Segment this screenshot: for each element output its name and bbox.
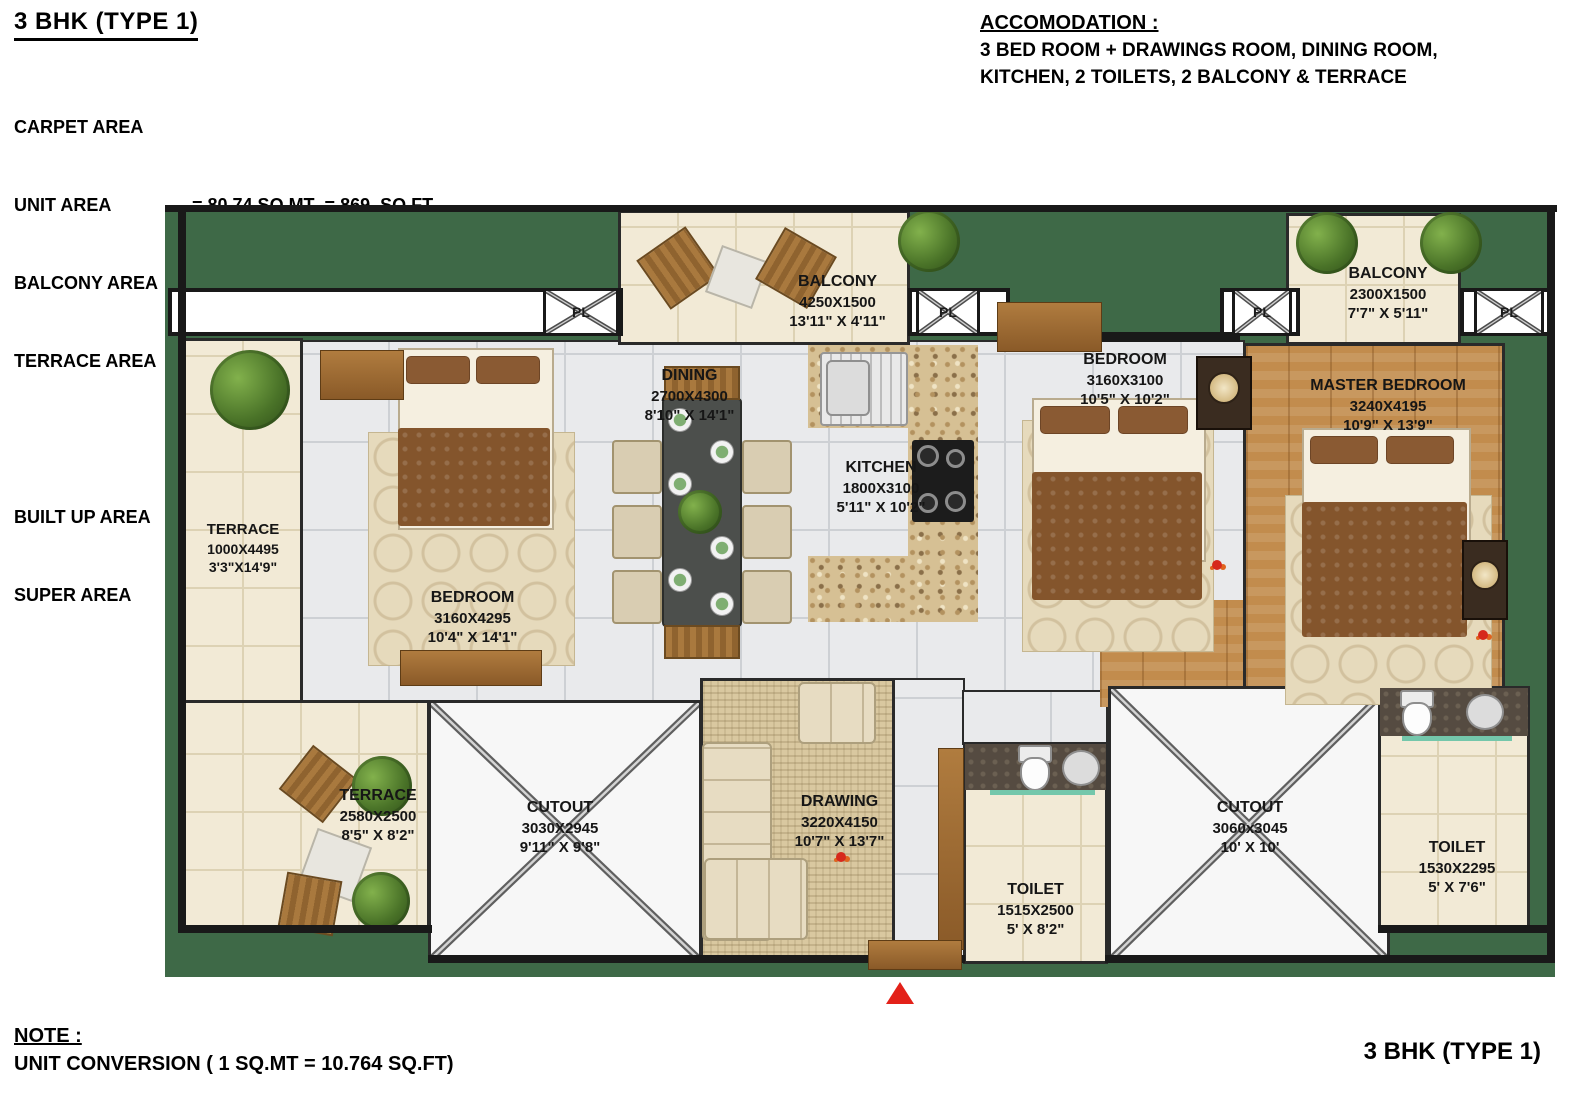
pillow (1310, 436, 1378, 464)
pillow (476, 356, 540, 384)
master-bedroom-label: MASTER BEDROOM 3240X4195 10'9" X 13'9" (1288, 376, 1488, 436)
bedroom-left-label: BEDROOM 3160X4295 10'4" X 14'1" (380, 588, 565, 648)
wall-bottom-right (1105, 955, 1555, 963)
armchair (798, 682, 876, 744)
bedroom-mid-label: BEDROOM 3160X3100 10'5" X 10'2" (1040, 350, 1210, 410)
toilet-right-label: TOILET 1530X2295 5' X 7'6" (1392, 838, 1522, 898)
balcony-right-label: BALCONY 2300X1500 7'7" X 5'11" (1318, 264, 1458, 324)
wc (1020, 757, 1050, 791)
cutout-left-label: CUTOUT 3030X2945 9'11" X 9'8" (485, 798, 635, 858)
lamp (1470, 560, 1500, 590)
wall-toilet-right (1378, 925, 1555, 933)
dining-chair (742, 505, 792, 559)
duvet (1032, 472, 1202, 600)
dining-chair (612, 440, 662, 494)
dining-chair (612, 570, 662, 624)
drawing-label: DRAWING 3220X4150 10'7" X 13'7" (762, 792, 917, 852)
pl-label: PL (1477, 304, 1541, 320)
towel-rail (1402, 736, 1512, 741)
pillow (406, 356, 470, 384)
pillow (1118, 406, 1188, 434)
dining-chair (742, 570, 792, 624)
dining-label: DINING 2700X4300 8'10" X 14'1" (582, 366, 797, 426)
plant-icon (898, 210, 960, 272)
pl-label: PL (546, 304, 616, 320)
plate (668, 568, 692, 592)
pl-label: PL (1235, 304, 1289, 320)
duvet (398, 428, 550, 526)
toilet-lobby-floor (962, 690, 1108, 745)
pillow (1386, 436, 1454, 464)
wall-top (165, 205, 1557, 212)
towel-rail (990, 790, 1095, 795)
wardrobe (997, 302, 1102, 352)
plate (710, 536, 734, 560)
flower-decor (1212, 560, 1222, 570)
plate (710, 440, 734, 464)
wall-bottom-left (178, 925, 432, 933)
flower-decor (836, 852, 846, 862)
terrace-bottom-label: TERRACE 2580X2500 8'5" X 8'2" (308, 786, 448, 846)
kitchen-counter-bottom (808, 556, 908, 622)
kitchen-label: KITCHEN 1800X3100 5'11" X 10'2" (806, 458, 956, 518)
floor-plan: PL PL PL PL BALCONY 4250X1500 13'11" X 4… (0, 0, 1583, 1097)
entrance-arrow-icon (886, 982, 914, 1004)
plant-icon (210, 350, 290, 430)
flower-decor (1478, 630, 1488, 640)
dining-chair (742, 440, 792, 494)
pl-shaft: PL (916, 288, 980, 336)
wardrobe (320, 350, 404, 400)
toilet-center-label: TOILET 1515X2500 5' X 8'2" (978, 880, 1093, 940)
basin (1466, 694, 1504, 730)
plate (710, 592, 734, 616)
plant-icon (352, 872, 410, 930)
pl-shaft: PL (1232, 288, 1292, 336)
dresser (400, 650, 542, 686)
cutout-right-label: CUTOUT 3060x3045 10' X 10' (1175, 798, 1325, 858)
pl-label: PL (919, 304, 977, 320)
dining-chair (612, 505, 662, 559)
kitchen-sink-bowl (826, 360, 870, 416)
wc (1402, 702, 1432, 736)
dining-chair (664, 625, 740, 659)
console-table (938, 748, 964, 950)
duvet (1302, 502, 1467, 637)
sofa-chaise (704, 858, 808, 940)
wall-right (1547, 205, 1555, 963)
entrance-door (868, 940, 962, 970)
balcony-top-label: BALCONY 4250X1500 13'11" X 4'11" (765, 272, 910, 332)
plant-icon (678, 490, 722, 534)
basin (1062, 750, 1100, 786)
lamp (1208, 372, 1240, 404)
terrace-left-label: TERRACE 1000X4495 3'3"X14'9" (183, 520, 303, 576)
pl-shaft: PL (543, 288, 619, 336)
pillow (1040, 406, 1110, 434)
pl-shaft: PL (1474, 288, 1544, 336)
